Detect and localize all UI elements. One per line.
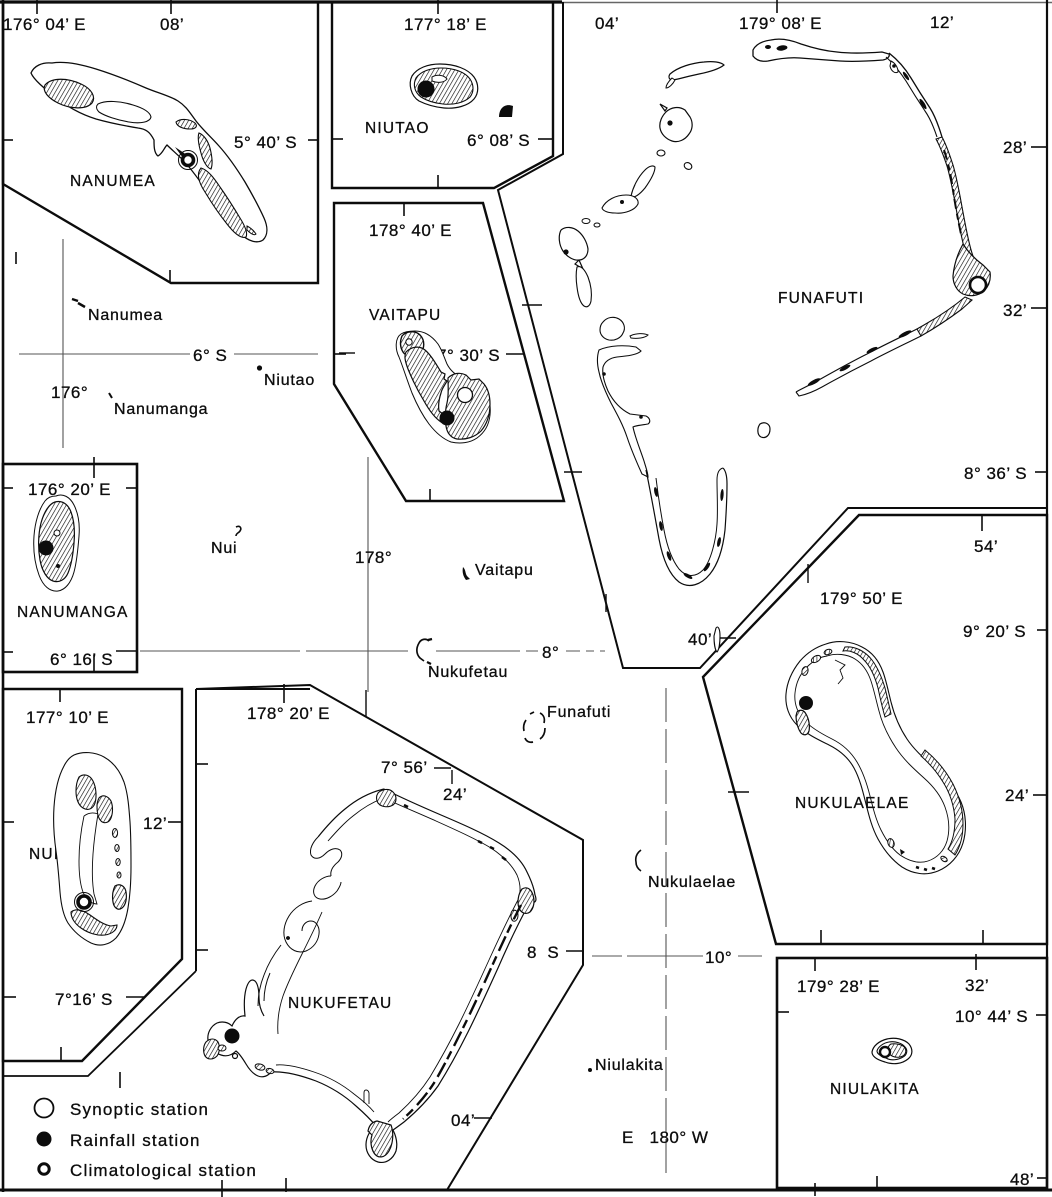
svg-text:Nukulaelae: Nukulaelae: [648, 874, 736, 891]
svg-text:Nanumea: Nanumea: [88, 307, 163, 324]
svg-text:NANUMANGA: NANUMANGA: [17, 604, 129, 621]
svg-text:NANUMEA: NANUMEA: [70, 173, 156, 190]
svg-text:6° S: 6° S: [193, 346, 227, 365]
svg-text:NIUTAO: NIUTAO: [365, 120, 430, 137]
svg-text:7° 56’: 7° 56’: [381, 758, 428, 777]
svg-text:6° 08’ S: 6° 08’ S: [467, 131, 530, 150]
svg-text:179° 08’ E: 179° 08’ E: [739, 14, 822, 33]
svg-text:08’: 08’: [160, 15, 184, 34]
svg-text:NUKULAELAE: NUKULAELAE: [795, 795, 910, 812]
svg-text:5° 40’ S: 5° 40’ S: [234, 133, 297, 152]
svg-text:Nukufetau: Nukufetau: [428, 664, 508, 681]
svg-text:54’: 54’: [974, 537, 998, 556]
svg-text:8 S: 8 S: [527, 943, 559, 962]
svg-text:178° 20’ E: 178° 20’ E: [247, 704, 330, 723]
svg-text:48’: 48’: [1010, 1170, 1034, 1189]
svg-text:NUKUFETAU: NUKUFETAU: [288, 995, 392, 1012]
svg-text:12’: 12’: [930, 13, 954, 32]
svg-text:8° 36’ S: 8° 36’ S: [964, 464, 1027, 483]
svg-text:24’: 24’: [1005, 786, 1029, 805]
svg-text:40’: 40’: [688, 630, 712, 649]
svg-text:177° 10’ E: 177° 10’ E: [26, 708, 109, 727]
svg-text:179° 28’ E: 179° 28’ E: [797, 977, 880, 996]
svg-text:178°: 178°: [355, 548, 392, 567]
svg-text:10°: 10°: [705, 948, 732, 967]
svg-text:176° 20’ E: 176° 20’ E: [28, 480, 111, 499]
svg-text:Funafuti: Funafuti: [547, 704, 611, 721]
svg-text:04’: 04’: [451, 1111, 475, 1130]
svg-text:10° 44’ S: 10° 44’ S: [955, 1007, 1028, 1026]
svg-text:Nui: Nui: [211, 540, 237, 557]
svg-text:176°: 176°: [51, 383, 88, 402]
svg-text:28’: 28’: [1003, 138, 1027, 157]
svg-text:FUNAFUTI: FUNAFUTI: [778, 290, 864, 307]
svg-text:Niutao: Niutao: [264, 372, 315, 389]
svg-text:177° 18’ E: 177° 18’ E: [404, 15, 487, 34]
svg-text:176° 04’ E: 176° 04’ E: [3, 15, 86, 34]
svg-text:Niulakita: Niulakita: [595, 1057, 664, 1074]
svg-text:Synoptic station: Synoptic station: [70, 1100, 209, 1119]
svg-text:32’: 32’: [965, 976, 989, 995]
svg-text:7°16’ S: 7°16’ S: [55, 990, 113, 1009]
svg-text:04’: 04’: [595, 14, 619, 33]
svg-text:12’: 12’: [143, 814, 167, 833]
svg-text:Vaitapu: Vaitapu: [475, 562, 534, 579]
svg-text:Climatological station: Climatological station: [70, 1161, 257, 1180]
svg-text:6° 16’ S: 6° 16’ S: [50, 650, 113, 669]
svg-text:24’: 24’: [443, 785, 467, 804]
svg-text:8°: 8°: [542, 643, 559, 662]
svg-text:32’: 32’: [1003, 301, 1027, 320]
svg-text:E 180° W: E 180° W: [622, 1128, 708, 1147]
svg-text:NUI: NUI: [29, 846, 59, 863]
svg-text:VAITAPU: VAITAPU: [369, 307, 441, 324]
svg-text:9° 20’ S: 9° 20’ S: [963, 622, 1026, 641]
svg-text:Rainfall station: Rainfall station: [70, 1131, 201, 1150]
svg-text:178° 40’ E: 178° 40’ E: [369, 221, 452, 240]
svg-text:179° 50’ E: 179° 50’ E: [820, 589, 903, 608]
svg-text:NIULAKITA: NIULAKITA: [830, 1081, 920, 1098]
svg-text:Nanumanga: Nanumanga: [114, 401, 208, 418]
